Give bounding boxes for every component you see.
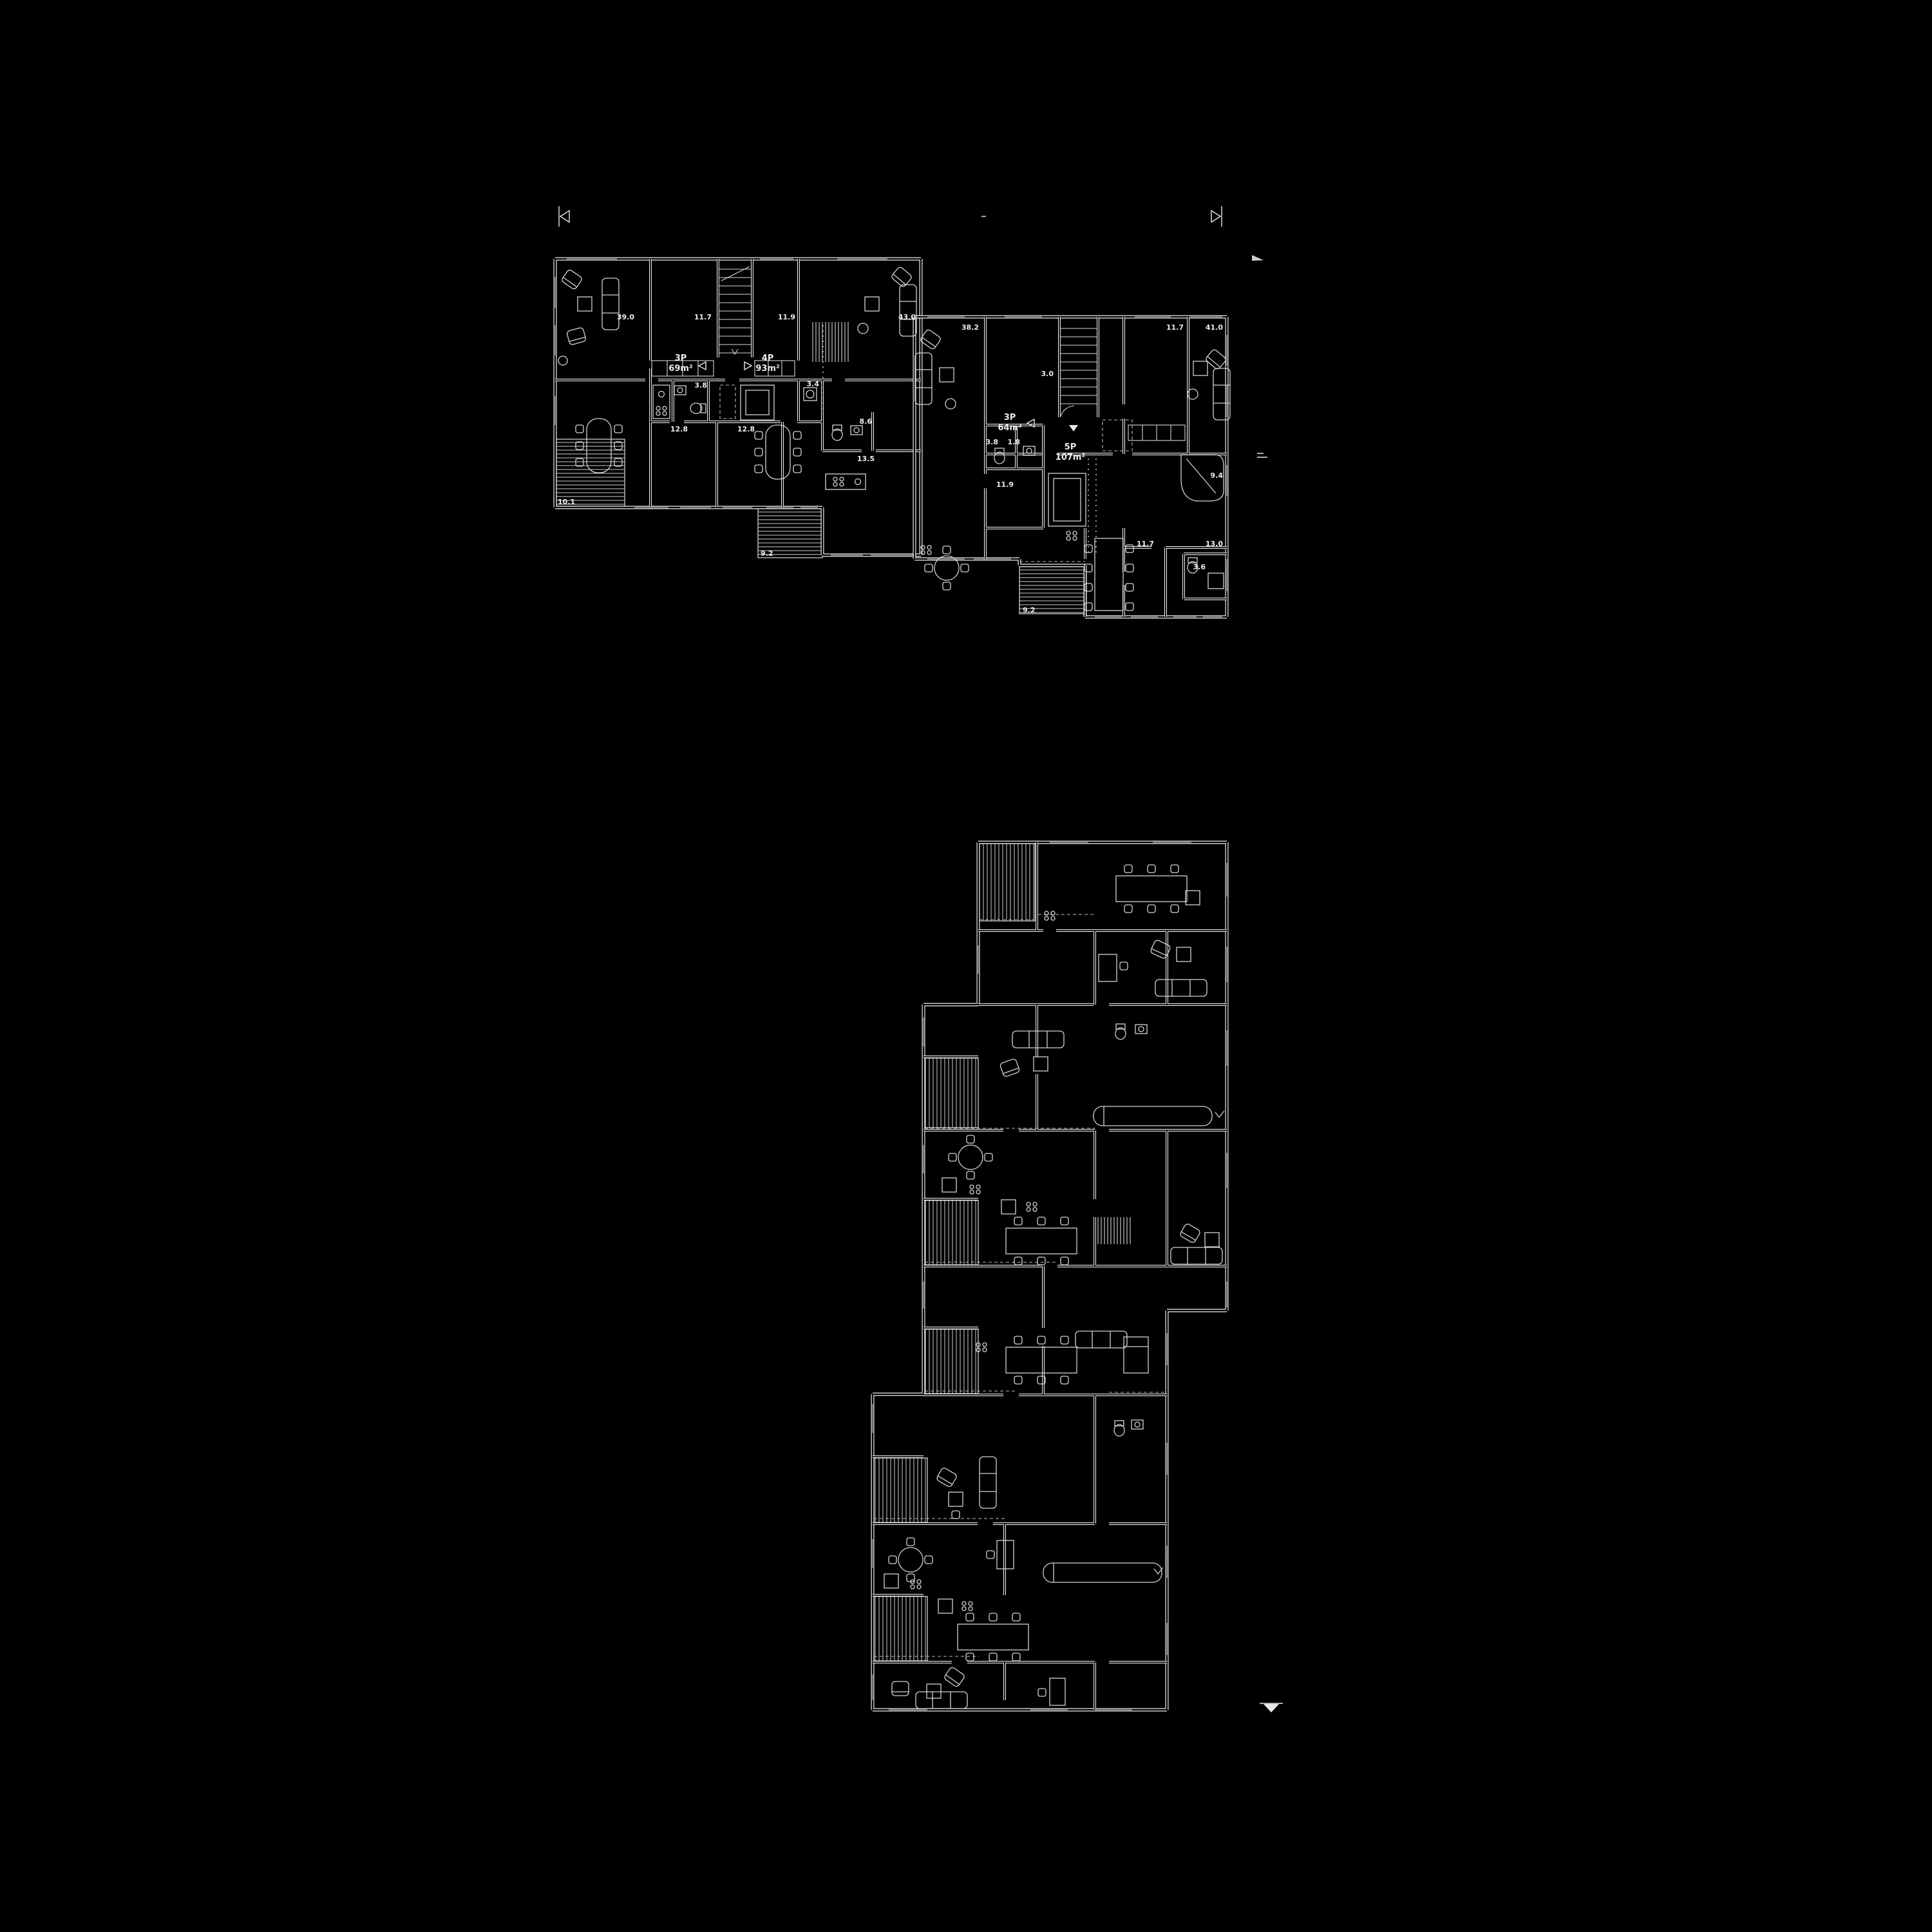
stove [962,1602,972,1611]
bathroom-fixtures [674,386,862,440]
unit-furniture [976,1331,1148,1436]
radiator [813,322,848,362]
desk [1050,1678,1065,1705]
sink [851,426,862,435]
sofa [1075,1331,1127,1348]
balcony-hatched [874,844,1035,1661]
armchair [561,269,583,290]
room-area: 11.9 [778,313,795,321]
closet-strip [1128,425,1185,440]
living-room-furniture [858,266,916,336]
room-area: 3.6 [1193,563,1206,571]
terrace-area: 9.2 [761,549,773,558]
north-arrow-small [1252,255,1264,261]
stove [1045,911,1055,920]
terrace-area: 9.2 [1023,606,1036,614]
unit-area: 69m² [668,364,692,374]
toilet [1114,1421,1124,1436]
room-area: 1.8 [1008,438,1021,446]
sink [1135,1025,1147,1034]
stool [945,399,956,409]
unit-area: 64m² [998,423,1021,433]
armchair [920,329,942,350]
toilet [832,425,842,440]
room-area: 11.9 [996,480,1014,489]
armchair [892,1681,909,1696]
windows [873,842,1227,1710]
shower-room [1048,473,1086,526]
sofa [916,1692,967,1709]
drawing-canvas: { "page": { "background_color": "#000000… [0,0,1932,1932]
room-area: 8.6 [860,417,873,426]
staircase [1061,328,1097,416]
bed [1124,1337,1148,1373]
unit-persons: 3P [1004,413,1016,422]
unit-persons: 3P [675,354,687,363]
unit-area: 93m² [755,364,779,374]
unit-furniture [1045,865,1207,1039]
section-cut-marker-bottom [1260,1703,1283,1712]
elevator-shaft [741,385,774,420]
counter [826,474,866,489]
stove [1066,531,1077,540]
armchair [1205,348,1227,370]
stool [558,356,567,365]
side-table [940,368,954,382]
tick-mark-right [1257,453,1267,457]
armchair [1179,1223,1201,1244]
stove [656,406,667,415]
room-area: 43.0 [898,313,916,321]
entry-arrow-icon [744,362,752,370]
building-left-walls [555,259,921,555]
side-table [1193,361,1207,375]
unit-persons: 5P [1065,442,1077,452]
washing-machine [804,388,817,401]
unit-persons: 4P [762,354,774,363]
room-area: 12.8 [670,425,688,433]
sink-basin [855,479,861,485]
built-in-bench [1094,1106,1212,1126]
toilet [690,403,706,413]
unit-labels: 3P 69m² 4P 93m² 3P 64m² 5P 107m² [668,354,1085,462]
sink [674,386,686,395]
chair [1038,1689,1046,1696]
desk [1099,954,1117,981]
dining-table [1006,1336,1077,1384]
shower [1208,573,1224,589]
armchair [943,1667,965,1688]
side-table [927,1684,941,1698]
sink [1132,1420,1143,1429]
room-area: 11.7 [694,313,712,321]
room-area: 9.4 [1211,471,1224,480]
entry-arrow-icon [1069,425,1078,431]
side-table [949,1492,963,1506]
built-in-bench [1043,1563,1162,1582]
living-room-furniture [915,329,969,590]
living-room-furniture [1188,348,1230,420]
room-area: 12.8 [737,425,755,433]
side-table [938,1599,952,1613]
toilet [1115,1024,1126,1039]
room-area: 39.0 [617,313,634,321]
entry-arrow-icon [699,362,706,370]
radiator [1098,1217,1130,1244]
lower-plan-walls [873,842,1227,1710]
room-area: 3.8 [695,381,708,390]
armchair [567,327,587,345]
lower-floor-plan [0,708,1932,1932]
side-table [865,297,879,311]
room-area: 3.4 [807,380,820,388]
section-cut-marker-left [559,206,569,227]
sofa [1155,980,1207,996]
terrace-area: 10.1 [558,498,575,506]
stove [911,1580,921,1589]
living-room-furniture [558,269,619,365]
chair [987,1551,994,1558]
dining-table [958,1613,1028,1661]
side-table [1034,1057,1048,1071]
armchair [936,1467,958,1488]
dining-table [755,425,801,479]
dashed-lines [874,914,1167,1656]
toilet [994,448,1005,464]
stove [833,477,844,486]
windows [555,259,1227,617]
dining-table [1006,1217,1077,1265]
room-area: 11.7 [1137,540,1154,548]
side-table [884,1574,898,1588]
room-area: 41.0 [1206,323,1223,332]
counter [653,385,670,419]
room-area: 3.8 [986,438,999,446]
side-table [942,1178,956,1192]
stool [858,323,868,334]
armchair [999,1058,1020,1077]
sofa [602,278,619,330]
round-table [889,1538,933,1582]
side-table [1001,1200,1016,1214]
side-table [1205,1233,1219,1247]
side-table [1177,947,1191,961]
room-area: 11.7 [1166,323,1184,332]
side-table [578,297,592,311]
unit-furniture [1001,1200,1222,1265]
room-area: 13.0 [1206,540,1223,548]
room-area: 13.5 [857,455,875,463]
chair [1120,962,1128,970]
sofa [1171,1247,1222,1264]
sink-basin [659,392,665,397]
check-tick-icon [1215,1111,1224,1117]
stove [970,1185,980,1194]
kitchen-fixtures [653,385,866,489]
side-table [1186,891,1200,905]
dining-table [1116,865,1187,913]
section-cut-marker-right [1211,206,1222,227]
upper-floor-plan: 3P 69m² 4P 93m² 3P 64m² 5P 107m² 39.0 11… [0,0,1932,708]
dashed-lines [823,325,1096,553]
staircase [719,267,751,354]
stove [1027,1202,1037,1211]
sofa [980,1457,996,1508]
room-area: 38.2 [961,323,979,332]
round-table [949,1135,992,1179]
chair [952,1511,960,1519]
room-area: 3.0 [1041,370,1054,378]
unit-furniture [942,1031,1224,1194]
unit-area: 107m² [1056,453,1085,462]
